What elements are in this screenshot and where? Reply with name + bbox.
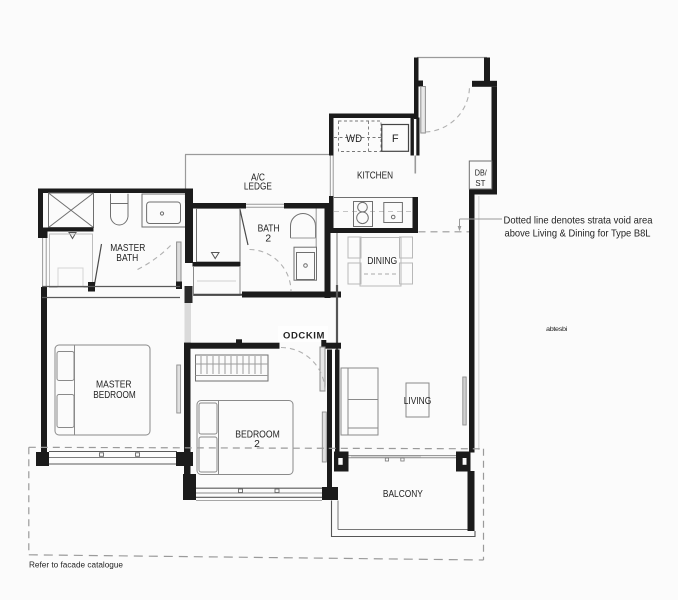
svg-text:WD: WD (346, 133, 362, 145)
svg-text:DB/: DB/ (475, 168, 488, 178)
svg-text:abtesbi: abtesbi (546, 326, 567, 333)
svg-text:ODCKIM: ODCKIM (283, 331, 325, 342)
svg-text:LIVING: LIVING (404, 396, 432, 407)
svg-text:Dotted line denotes strata voi: Dotted line denotes strata void area (504, 215, 653, 227)
svg-text:LEDGE: LEDGE (244, 181, 272, 192)
svg-text:DINING: DINING (367, 256, 397, 267)
svg-text:Refer to facade catalogue: Refer to facade catalogue (29, 560, 123, 570)
svg-text:MASTER: MASTER (96, 380, 132, 391)
svg-text:BALCONY: BALCONY (383, 489, 423, 500)
svg-text:F: F (392, 133, 399, 145)
svg-text:2: 2 (265, 234, 271, 245)
svg-text:KITCHEN: KITCHEN (357, 171, 393, 182)
svg-text:above Living & Dining for Type: above Living & Dining for Type B8L (505, 228, 651, 240)
svg-text:ST: ST (475, 178, 485, 188)
svg-text:BATH: BATH (116, 253, 138, 264)
svg-text:BEDROOM: BEDROOM (93, 390, 136, 401)
